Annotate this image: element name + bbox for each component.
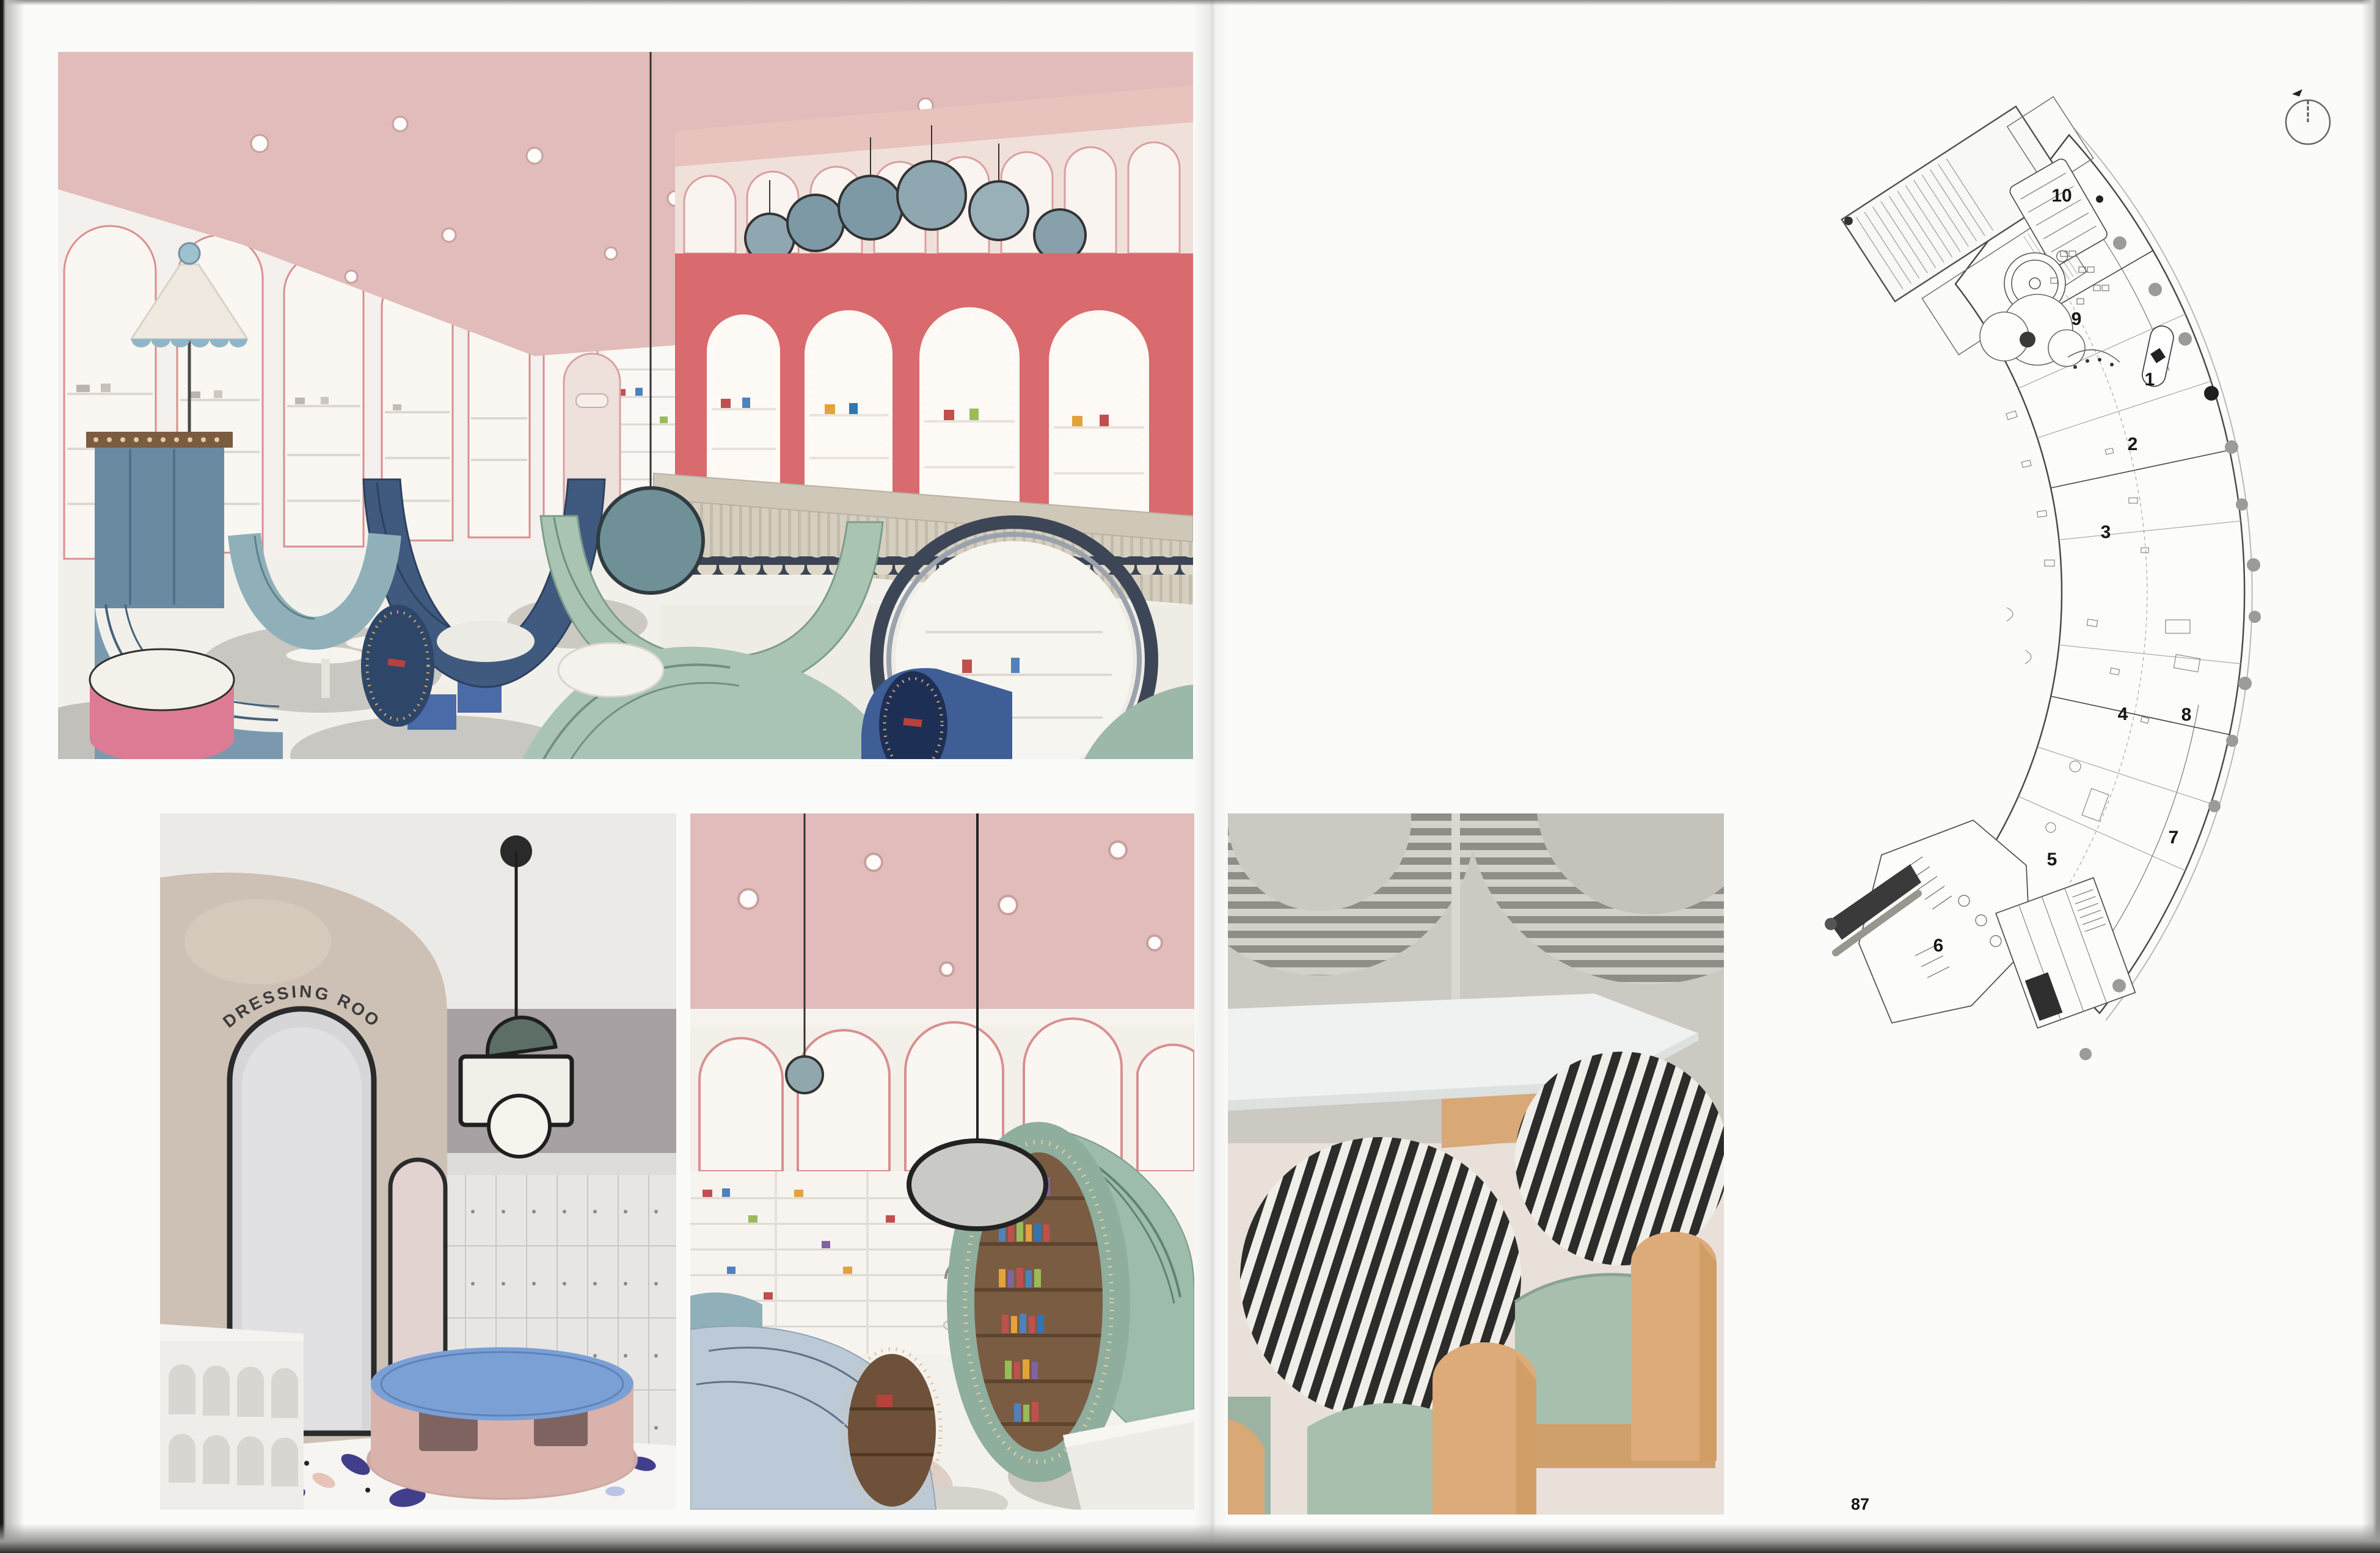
svg-text:3: 3 — [2101, 522, 2111, 542]
svg-text:1: 1 — [2145, 369, 2155, 390]
svg-text:8: 8 — [2181, 705, 2192, 725]
svg-text:5: 5 — [2047, 849, 2057, 870]
photo-rest-area — [1228, 813, 1724, 1515]
wood-cylinder-left — [1433, 1342, 1536, 1515]
svg-text:9: 9 — [2072, 309, 2082, 329]
north-compass — [2280, 84, 2336, 148]
scan-edge-left — [0, 0, 24, 1553]
photo-reading-area — [58, 52, 1193, 759]
svg-text:4: 4 — [2118, 704, 2128, 724]
page-gutter-shadow — [1192, 0, 1230, 1553]
scan-edge-bottom — [0, 1524, 2380, 1553]
scan-edge-top — [0, 0, 2380, 5]
svg-text:7: 7 — [2169, 827, 2179, 848]
svg-text:2: 2 — [2128, 434, 2138, 454]
book-spread: DRESSING ROOM — [0, 0, 2380, 1553]
photo-reading-room — [690, 813, 1194, 1510]
page-number: 87 — [1851, 1495, 1869, 1514]
round-table — [367, 1347, 638, 1500]
wood-cylinder-right — [1631, 1232, 1717, 1461]
page-right: On the left: reading area (top), adult b… — [1195, 0, 2380, 1553]
page-left: DRESSING ROOM — [0, 0, 1195, 1553]
floor-plan: 10 9 1 2 3 4 8 7 5 6 — [1823, 70, 2276, 1108]
compass-icon — [2280, 84, 2336, 148]
striped-chair-back-right — [1515, 1052, 1724, 1265]
pink-ottoman — [90, 649, 234, 759]
svg-text:6: 6 — [1933, 936, 1944, 956]
svg-text:10: 10 — [2051, 186, 2072, 206]
photo-dressing-room: DRESSING ROOM — [160, 813, 676, 1510]
locker-top — [429, 1153, 676, 1175]
scan-edge-right — [2362, 0, 2380, 1553]
cubby-bench — [160, 1324, 304, 1510]
